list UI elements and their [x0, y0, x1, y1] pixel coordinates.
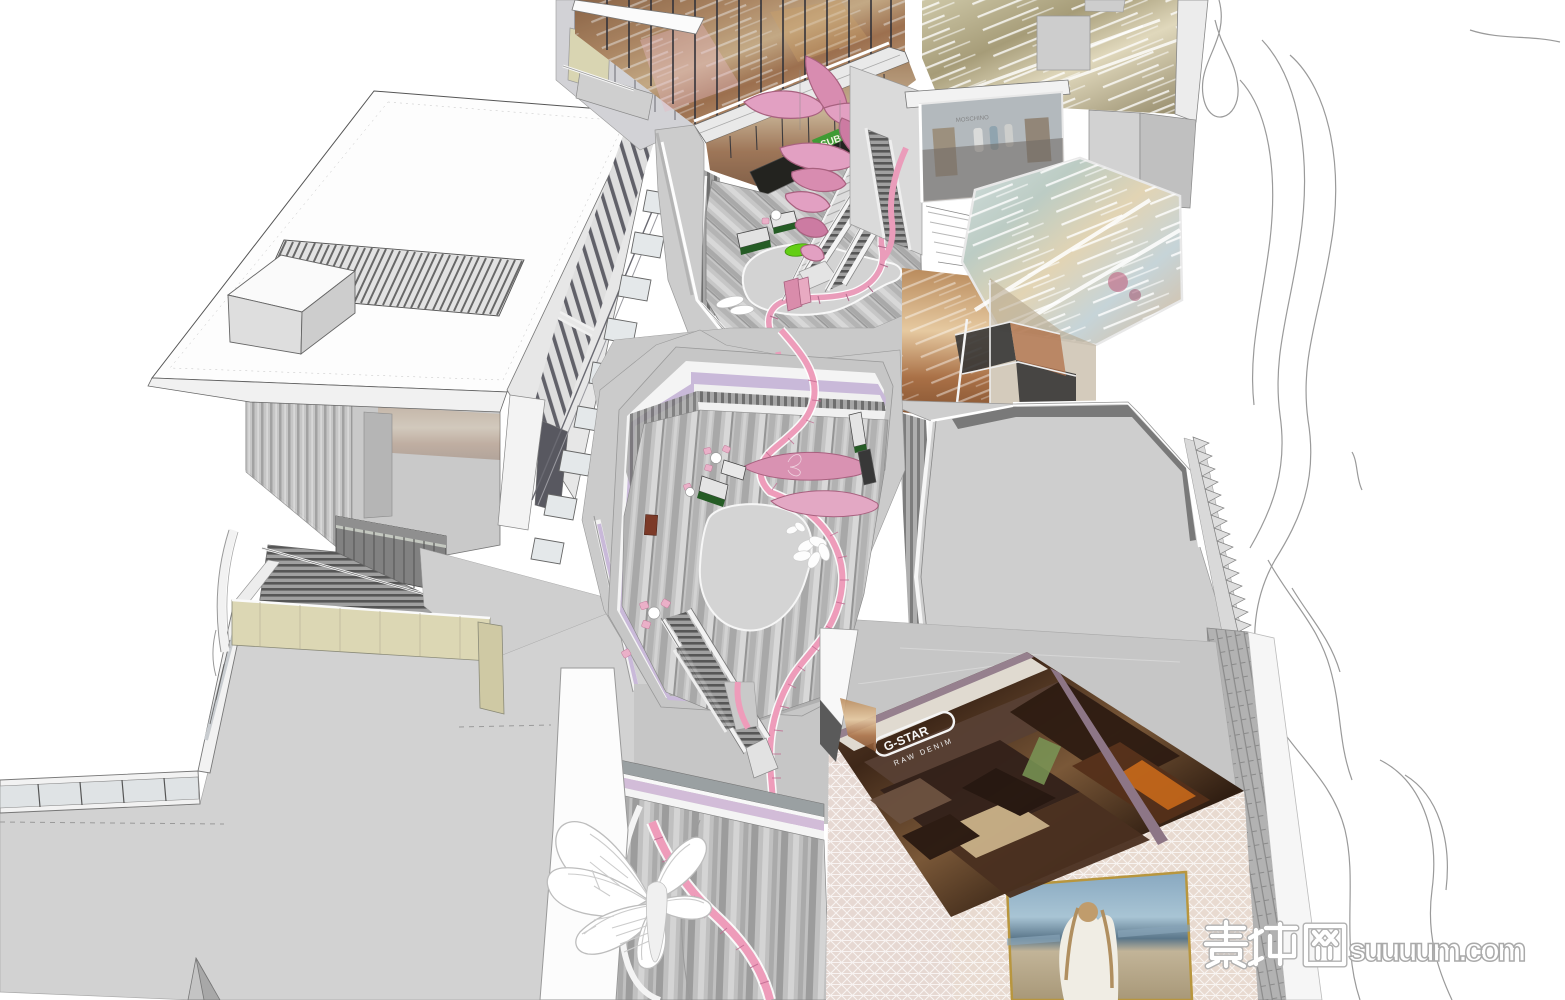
- svg-text:suuuum.com: suuuum.com: [1348, 931, 1525, 968]
